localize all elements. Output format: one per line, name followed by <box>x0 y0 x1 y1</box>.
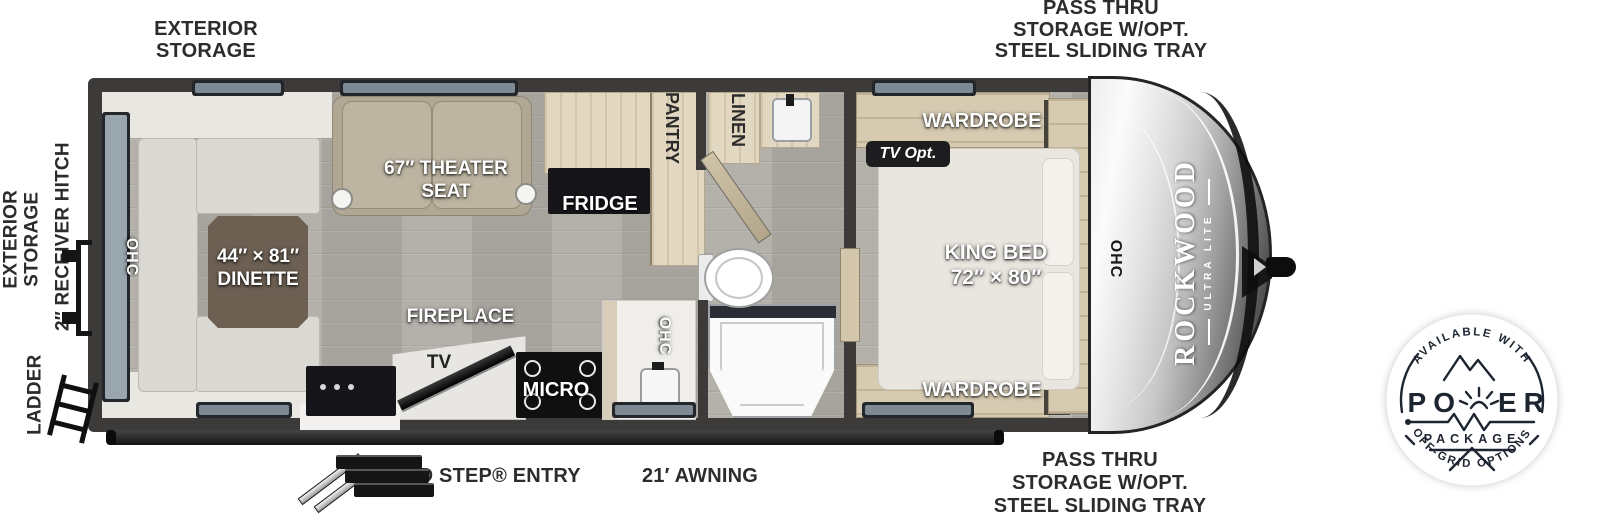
window <box>872 80 976 96</box>
label-line: STEEL SLIDING TRAY <box>950 495 1250 518</box>
pass-thru-top-label: PASS THRU STORAGE W/OPT. STEEL SLIDING T… <box>951 0 1251 63</box>
window <box>612 402 696 418</box>
shower-pan <box>720 322 824 406</box>
theater-line2: SEAT <box>348 181 544 204</box>
tv-opt-badge: TV Opt. <box>866 141 950 167</box>
bath-wall-lower <box>698 300 708 418</box>
window <box>862 402 974 418</box>
bedroom-sliding-door <box>840 248 860 342</box>
window-glass <box>875 83 973 93</box>
window <box>192 80 284 96</box>
toilet <box>704 248 774 308</box>
ohc-front-label: OHC <box>1104 231 1124 287</box>
awning-roller-bar <box>106 430 1004 445</box>
shower <box>708 304 836 418</box>
label-line: STORAGE <box>120 40 292 62</box>
label-line: PASS THRU <box>950 449 1250 472</box>
bath-faucet <box>786 94 794 106</box>
window-glass <box>615 405 693 415</box>
shower-door-track <box>710 306 838 318</box>
tv-label: TV <box>417 352 461 374</box>
burner <box>579 360 596 377</box>
label-line: STORAGE W/OPT. <box>951 20 1251 42</box>
floorplan-stage: EXTERIOR STORAGE PASS THRU STORAGE W/OPT… <box>0 0 1600 520</box>
ladder-rung <box>54 401 92 415</box>
awning-endcap <box>106 430 116 445</box>
step-dot <box>320 384 326 390</box>
rear-receiver-hitch <box>76 240 92 336</box>
micro-label: MICRO <box>496 378 616 402</box>
line-dot <box>1405 419 1411 425</box>
power-package-badge: AVAILABLE WITH PO ER PACKAGE OFF-GRID OP… <box>1382 310 1562 490</box>
window-glass <box>199 405 289 415</box>
king-bed-line2: 72″ × 80″ <box>898 265 1094 290</box>
ohc-kitchen-label: OHC <box>654 308 674 364</box>
ladder-label: LADDER <box>24 350 45 440</box>
hitch-coupler <box>1266 257 1296 277</box>
ohc-rear-label: OHC <box>121 229 141 285</box>
pass-thru-bottom-label: PASS THRU STORAGE W/OPT. STEEL SLIDING T… <box>950 449 1250 518</box>
label-line: STORAGE W/OPT. <box>950 472 1250 495</box>
brand-sub-text: ULTRA LITE <box>1203 213 1214 310</box>
window-glass <box>343 83 515 93</box>
badge-power-left: PO <box>1408 387 1462 418</box>
dinette-word: DINETTE <box>193 269 323 292</box>
king-bed-line1: KING BED <box>898 240 1094 265</box>
brand-subtitle: ULTRA LITE <box>1203 127 1214 397</box>
window-glass <box>195 83 281 93</box>
brand-rule <box>1208 319 1210 345</box>
rockwood-logo: ROCKWOOD ULTRA LITE <box>1170 127 1222 397</box>
wardrobe-top-label: WARDROBE <box>892 109 1072 133</box>
entry-step-well <box>306 366 396 416</box>
dinette-label: 44″ × 81″ DINETTE <box>193 246 323 292</box>
step-dot <box>348 384 354 390</box>
hitch-arm <box>62 250 78 262</box>
theater-seat-label: 67″ THEATER SEAT <box>348 158 544 204</box>
badge-svg: AVAILABLE WITH PO ER PACKAGE OFF-GRID OP… <box>1382 310 1562 490</box>
badge-power-right: ER <box>1498 387 1551 418</box>
burner <box>524 360 541 377</box>
fireplace-label: FIREPLACE <box>388 306 533 329</box>
label-line: PASS THRU <box>951 0 1251 20</box>
king-bed-label: KING BED 72″ × 80″ <box>898 240 1094 290</box>
exterior-storage-top-label: EXTERIOR STORAGE <box>120 18 292 63</box>
awning-endcap <box>994 430 1004 445</box>
ladder-rung <box>50 419 88 433</box>
window-glass <box>865 405 971 415</box>
toilet-lid <box>715 257 763 299</box>
entry-step-tread <box>354 483 434 497</box>
label-line: EXTERIOR <box>1 159 22 319</box>
entry-step-tread <box>345 469 429 483</box>
awning-label: 21′ AWNING <box>610 465 790 487</box>
label-line: EXTERIOR <box>120 18 292 40</box>
rear-upper-cabinet <box>102 92 332 138</box>
dinette-bench-top <box>196 138 320 214</box>
step-dot <box>334 384 340 390</box>
pantry-label: PANTRY <box>658 48 682 208</box>
window <box>196 402 292 418</box>
label-line: STEEL SLIDING TRAY <box>951 41 1251 63</box>
receiver-hitch-label: 2″ RECEIVER HITCH <box>52 137 73 337</box>
dinette-size: 44″ × 81″ <box>193 246 323 269</box>
ladder-rung <box>59 382 97 396</box>
wardrobe-bottom-label: WARDROBE <box>892 378 1072 402</box>
brand-name: ROCKWOOD <box>1170 127 1202 397</box>
fridge-label: FRIDGE <box>540 192 660 216</box>
window <box>340 80 518 96</box>
brand-rule <box>1208 179 1210 205</box>
theater-line1: 67″ THEATER <box>348 158 544 181</box>
rear-ladder-icon <box>47 374 99 443</box>
hitch-arm <box>62 312 78 324</box>
exterior-storage-rear-label: EXTERIOR STORAGE <box>1 159 44 319</box>
entry-step-tread <box>336 455 422 469</box>
badge-package-text: PACKAGE <box>1424 432 1521 446</box>
linen-label: LINEN <box>724 65 748 175</box>
dinette-bench-rear <box>138 138 198 392</box>
label-line: STORAGE <box>22 159 43 319</box>
